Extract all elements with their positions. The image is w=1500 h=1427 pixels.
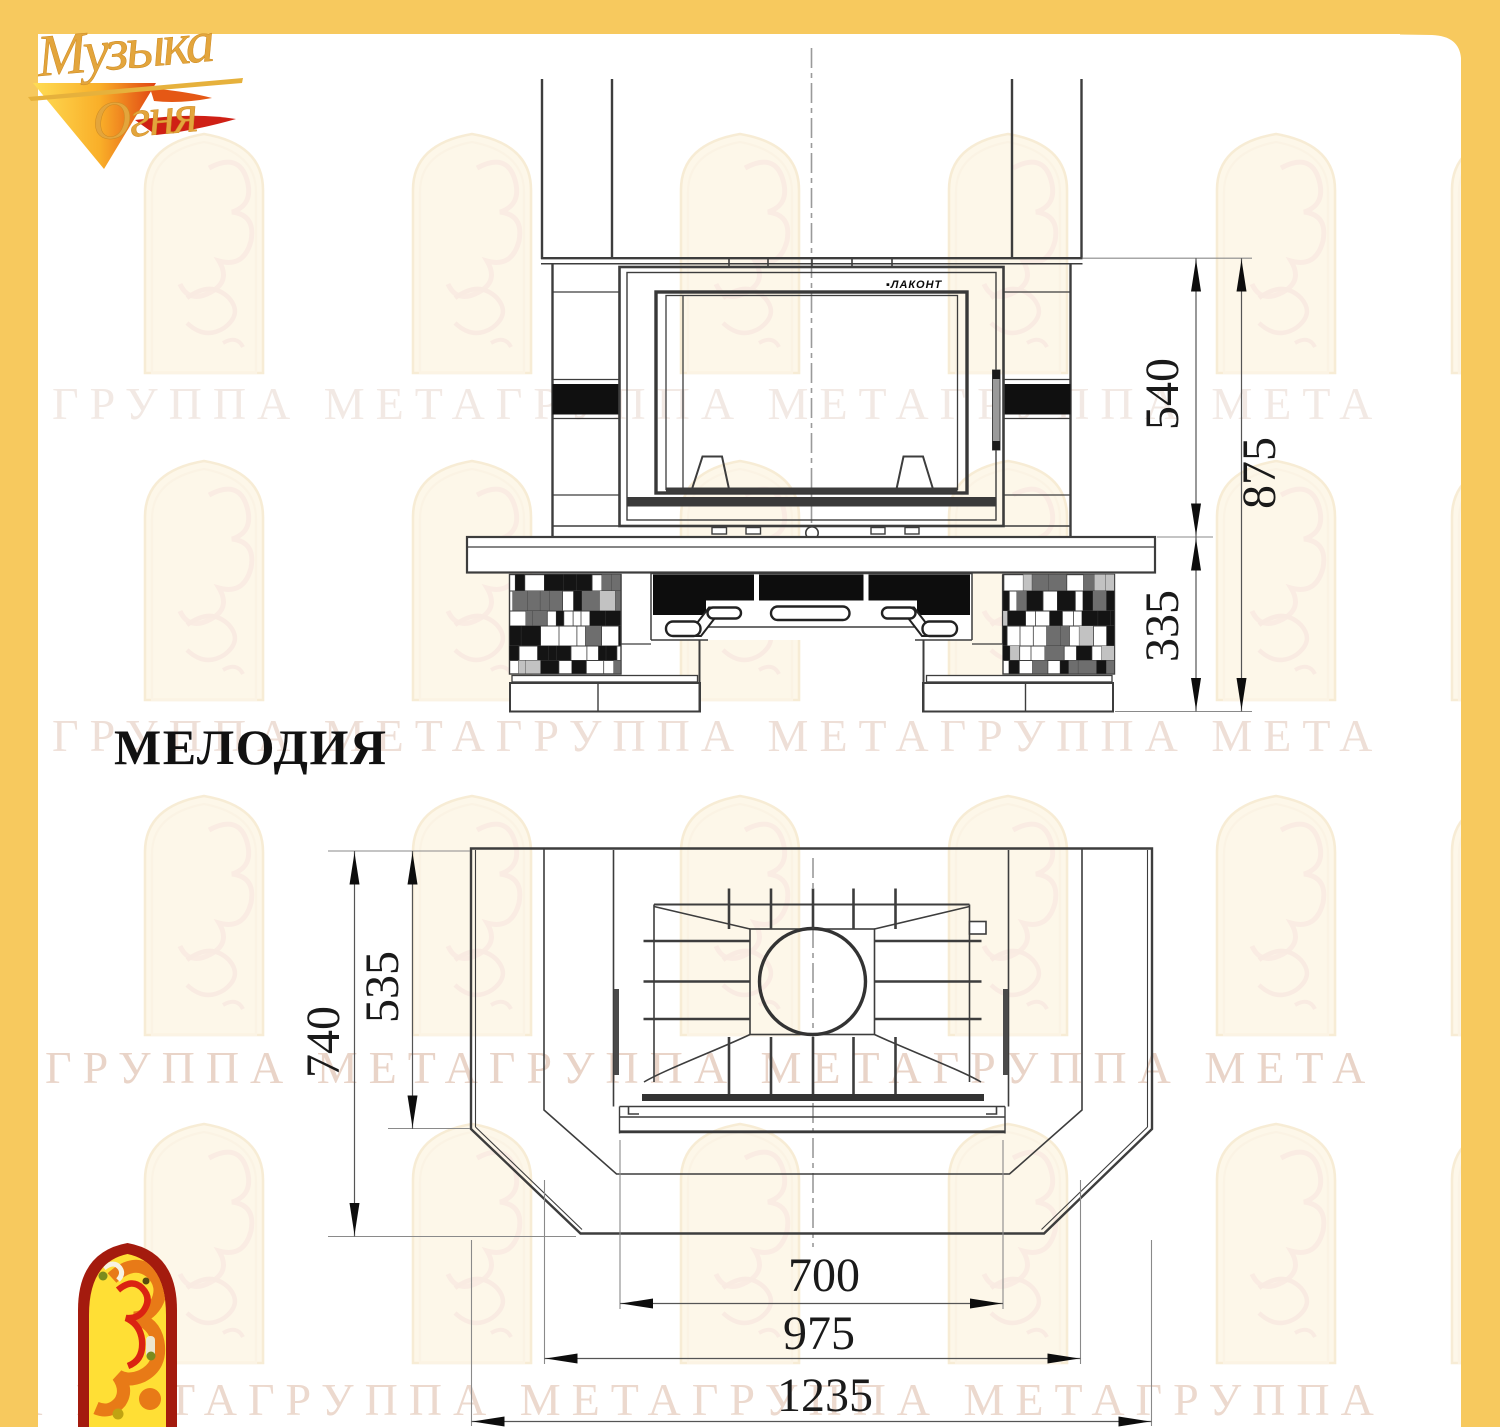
- svg-text:535: 535: [356, 951, 409, 1023]
- svg-text:Огня: Огня: [90, 83, 199, 152]
- svg-text:540: 540: [1136, 358, 1189, 430]
- svg-text:740: 740: [297, 1006, 350, 1078]
- svg-text:МЕЛОДИЯ: МЕЛОДИЯ: [114, 719, 387, 775]
- svg-text:ГРУППА МЕТАГРУППА МЕТАГРУППА М: ГРУППА МЕТАГРУППА МЕТАГРУППА МЕТА: [45, 1042, 1376, 1093]
- svg-text:335: 335: [1136, 590, 1189, 662]
- svg-text:ПА МЕТАГРУППА МЕТАГРУППА МЕТАГ: ПА МЕТАГРУППА МЕТАГРУППА МЕТАГРУППА: [0, 1374, 1385, 1425]
- svg-text:1235: 1235: [777, 1369, 873, 1422]
- svg-text:700: 700: [788, 1249, 860, 1302]
- svg-text:975: 975: [783, 1307, 855, 1360]
- svg-text:875: 875: [1233, 437, 1286, 509]
- svg-text:▪ЛАКОНТ: ▪ЛАКОНТ: [886, 279, 943, 291]
